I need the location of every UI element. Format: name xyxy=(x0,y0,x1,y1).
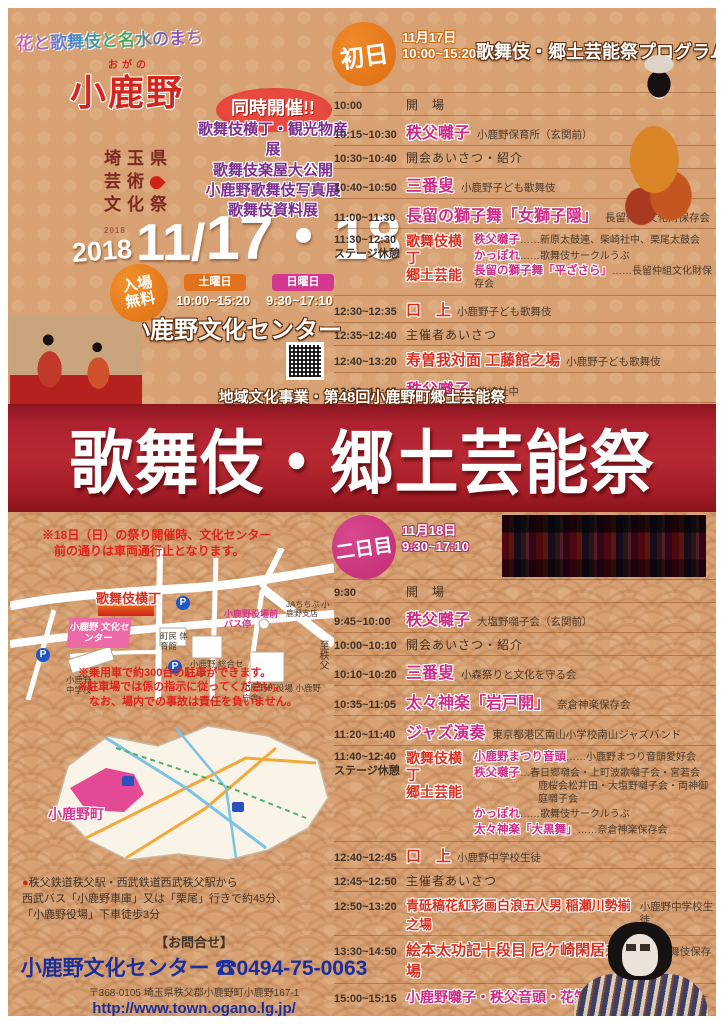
row-text: 開会あいさつ・紹介 xyxy=(406,636,523,653)
row-time: 9:30 xyxy=(334,587,406,599)
item-detail: ……新原太鼓連、柴崎社中、栗尾太鼓会 xyxy=(520,235,700,246)
row-title: 秩父囃子 xyxy=(406,119,470,143)
map-label-bus-stop: 小鹿野役場前 バス停 xyxy=(224,610,288,630)
row-time: 12:40~13:20 xyxy=(334,356,406,368)
qr-code xyxy=(286,342,324,380)
map-label-to-chichibu: 至秩父 xyxy=(315,640,330,670)
sunday-time: 9:30~17:10 xyxy=(266,293,333,308)
schedule-row: 10:10~10:20三番叟小森祭りと文化を守る会 xyxy=(334,655,716,685)
stage-photo xyxy=(502,515,706,577)
day2-time-text: 9:30~17:10 xyxy=(402,539,469,554)
row-org: 小鹿野子ども歌舞伎 xyxy=(461,182,556,195)
saitama-line1: 埼玉県 xyxy=(104,149,173,168)
day1-badge: 初日 xyxy=(328,18,400,90)
stage-break-row: 11:30~12:30ステージ休憩 歌舞伎横丁郷土芸能 秩父囃子……新原太鼓連、… xyxy=(334,228,716,295)
row-note: ステージ休憩 xyxy=(334,247,406,261)
row-time: 11:40~12:40 xyxy=(334,750,406,764)
row-text: 開 場 xyxy=(406,583,445,600)
row-title: 太々神楽「岩戸開」 xyxy=(406,689,550,713)
kabuki-street-bar xyxy=(98,606,154,616)
access-note: ●秩父鉄道秩父駅・西武鉄道西武秩父駅から 西武バス「小鹿野車庫」又は「栗尾」行き… xyxy=(22,876,287,924)
row-org: 奈倉神楽保存会 xyxy=(557,699,631,712)
parking-note-line2: ※駐車場では係の指示に従ってください。 xyxy=(78,681,284,693)
row-title: 三番叟 xyxy=(406,659,454,683)
row-time: 9:45~10:00 xyxy=(334,616,406,628)
parking-icon: P xyxy=(36,648,50,662)
schedule-row: 12:35~12:40主催者あいさつ xyxy=(334,322,716,345)
day2-date-text: 11月18日 xyxy=(402,523,456,538)
item-name: 秩父囃子 xyxy=(474,234,520,246)
row-text: 主催者あいさつ xyxy=(406,872,497,889)
contact-name-phone: 小鹿野文化センター ☎0494-75-0063 xyxy=(16,952,372,982)
row-org: 小鹿野中学校生徒 xyxy=(457,852,541,865)
row-time: 10:00~10:10 xyxy=(334,640,406,652)
row-time: 12:35~12:40 xyxy=(334,330,406,342)
contact-phone: 0494-75-0063 xyxy=(237,957,368,980)
contact-address: 〒368-0105 埼玉県秩父郡小鹿野町小鹿野167-1 xyxy=(16,984,372,999)
item-name: かっぽれ xyxy=(474,250,520,262)
row-title: ジャズ演奏 xyxy=(406,719,485,743)
row-title: 寿曽我対面 工藤館之場 xyxy=(406,349,560,370)
row-org: 小鹿野子ども歌舞伎 xyxy=(566,356,661,369)
phone-icon: ☎ xyxy=(216,957,237,980)
teardrop-icon xyxy=(147,173,165,191)
schedule-row: 9:30開 場 xyxy=(334,579,716,602)
local-arts-label: 郷土芸能 xyxy=(406,267,474,284)
break-item: 秩父囃子……新原太鼓連、柴崎社中、栗尾太鼓会 xyxy=(474,233,716,248)
bullet-icon: ● xyxy=(22,877,29,889)
row-time: 10:35~11:05 xyxy=(334,699,406,711)
day1-date: 11月17日 10:00~15:20 xyxy=(402,30,476,63)
actor-photo-bottom xyxy=(564,922,716,1016)
concurrent-event: 歌舞伎資料展 xyxy=(194,201,352,221)
actor-face xyxy=(622,934,658,976)
row-time: 10:15~10:30 xyxy=(334,129,406,141)
traffic-note-line1: ※18日（日）の祭り開催時、文化センター xyxy=(42,528,271,542)
schedule-row: 11:20~11:40ジャズ演奏東京都港区南山小学校南山ジャズバンド xyxy=(334,715,716,745)
access-line3: 「小鹿野役場」下車徒歩3分 xyxy=(22,909,160,921)
row-org: 小鹿野子ども歌舞伎 xyxy=(457,306,552,319)
schedule-row: 12:40~13:20寿曽我対面 工藤館之場小鹿野子ども歌舞伎 xyxy=(334,345,716,372)
kabuki-actor-photo xyxy=(600,48,716,228)
item-detail: …春日郷囃会・上町波歌囃子会・宮若会 xyxy=(520,768,700,779)
row-time: 11:30~12:30 xyxy=(334,233,406,247)
saitama-line2: 芸術 xyxy=(104,172,150,191)
access-line1: 秩父鉄道秩父駅・西武鉄道西武秩父駅から xyxy=(29,877,238,889)
venue-name: 小鹿野文化センター xyxy=(126,310,342,345)
parking-note-line3: なお、場内での事故は責任を負いません。 xyxy=(78,696,298,708)
schedule-row: 10:35~11:05太々神楽「岩戸開」奈倉神楽保存会 xyxy=(334,685,716,715)
concurrent-heading: 同時開催!! xyxy=(194,94,352,120)
row-time: 11:00~11:30 xyxy=(334,212,406,224)
day1-time-text: 10:00~15:20 xyxy=(402,46,476,61)
row-title: 口 上 xyxy=(406,845,451,866)
row-text: 開 場 xyxy=(406,96,445,113)
row-time: 10:00 xyxy=(334,100,406,112)
item-name: 長留の獅子舞「平ざさら」 xyxy=(474,265,612,277)
item-detail: 鹿桜会松井田・大塩野囃子会・両神御庭囃子会 xyxy=(538,781,708,805)
prefecture-map-shape xyxy=(26,708,338,870)
traffic-note: ※18日（日）の祭り開催時、文化センター 前の通りは車両通行止となります。 xyxy=(42,528,271,559)
saturday-time: 10:00~15:20 xyxy=(176,293,250,308)
row-org: 小森祭りと文化を守る会 xyxy=(461,669,577,682)
main-title-banner: 歌舞伎・郷土芸能祭 xyxy=(8,404,716,512)
item-name: 小鹿野まつり音頭 xyxy=(474,751,566,763)
break-item: 鹿桜会松井田・大塩野囃子会・両神御庭囃子会 xyxy=(474,781,716,806)
poster: 花と歌舞伎と名水のまち おがの 小鹿野 同時開催!! 歌舞伎横丁・観光物産展 歌… xyxy=(8,8,716,1016)
date-year: 2018 xyxy=(71,233,133,268)
row-title: 口 上 xyxy=(406,299,451,320)
map-label-kabuki-street: 歌舞伎横丁 xyxy=(96,588,161,607)
actor-makeup xyxy=(626,944,654,951)
row-title: 秩父囃子 xyxy=(406,606,470,630)
row-time: 10:40~10:50 xyxy=(334,182,406,194)
town-slogan: 花と歌舞伎と名水のまち xyxy=(16,22,227,54)
day1-date-text: 11月17日 xyxy=(402,30,456,45)
schedule-row: 9:45~10:00秩父囃子大塩野囃子会（玄関前） xyxy=(334,602,716,632)
parking-icon: P xyxy=(176,596,190,610)
item-name: 太々神楽「大黒舞」 xyxy=(474,824,578,836)
kabuki-street-label: 歌舞伎横丁 xyxy=(406,750,474,784)
row-time: 12:30~12:35 xyxy=(334,306,406,318)
schedule-row: 12:30~12:35口 上小鹿野子ども歌舞伎 xyxy=(334,295,716,322)
item-detail: ……小鹿野まつり音頭愛好会 xyxy=(566,752,696,763)
map-label-culture-center: 小鹿野 文化センター xyxy=(66,618,131,648)
row-time: 12:50~13:20 xyxy=(334,901,406,913)
item-detail: ……奈倉神楽保存会 xyxy=(578,825,668,836)
day2-date: 11月18日 9:30~17:10 xyxy=(402,523,469,556)
row-time: 11:20~11:40 xyxy=(334,729,406,741)
item-detail: ……歌舞伎サークルうぶ xyxy=(520,809,630,820)
access-line2: 西武バス「小鹿野車庫」又は「栗尾」行きで約45分、 xyxy=(22,893,287,905)
town-name: 小鹿野 xyxy=(70,64,184,116)
row-time: 10:10~10:20 xyxy=(334,669,406,681)
concurrent-event: 歌舞伎楽屋大公開 xyxy=(194,161,352,181)
day2-badge: 二日目 xyxy=(328,511,400,583)
break-item: 秩父囃子…春日郷囃会・上町波歌囃子会・宮若会 xyxy=(474,766,716,781)
item-name: 秩父囃子 xyxy=(474,767,520,779)
schedule-row: 10:00~10:10開会あいさつ・紹介 xyxy=(334,632,716,655)
parking-note-line1: ※乗用車で約300台の駐車ができます。 xyxy=(78,667,271,679)
prefecture-map: 小鹿野町 xyxy=(26,708,338,870)
map-label-ja: JAちちぶ 小鹿野支店 xyxy=(286,600,330,618)
local-arts-label: 郷土芸能 xyxy=(406,784,474,801)
contact-name: 小鹿野文化センター xyxy=(21,957,210,980)
break-item: 長留の獅子舞「平ざさら」……長留仲組文化財保存会 xyxy=(474,264,716,291)
break-item: かっぽれ……歌舞伎サークルうぶ xyxy=(474,807,716,822)
map-label-ogano-town: 小鹿野町 xyxy=(48,804,104,824)
item-detail: ……歌舞伎サークルうぶ xyxy=(520,251,630,262)
contact-block: 【お問合せ】 小鹿野文化センター ☎0494-75-0063 〒368-0105… xyxy=(16,932,372,1016)
break-item: 太々神楽「大黒舞」……奈倉神楽保存会 xyxy=(474,823,716,838)
contact-url[interactable]: http://www.town.ogano.lg.jp/ xyxy=(16,1000,372,1016)
row-time: 12:40~12:45 xyxy=(334,852,406,864)
subtitle: 地域文化事業・第48回小鹿野町郷土芸能祭 xyxy=(8,386,716,407)
concurrent-events: 同時開催!! 歌舞伎横丁・観光物産展 歌舞伎楽屋大公開 小鹿野歌舞伎写真展 歌舞… xyxy=(194,94,352,221)
concurrent-event: 歌舞伎横丁・観光物産展 xyxy=(194,120,352,161)
kabuki-street-label: 歌舞伎横丁 xyxy=(406,233,474,267)
sunday-badge: 日曜日 xyxy=(272,274,334,291)
row-title: 三番叟 xyxy=(406,172,454,196)
row-text: 開会あいさつ・紹介 xyxy=(406,149,523,166)
day2-header: 二日目 11月18日 9:30~17:10 xyxy=(334,513,716,579)
actor-kimono xyxy=(574,974,708,1016)
saturday-badge: 土曜日 xyxy=(184,274,246,291)
row-note: ステージ休憩 xyxy=(334,764,406,778)
row-time: 10:30~10:40 xyxy=(334,153,406,165)
stage-break-row: 11:40~12:40ステージ休憩 歌舞伎横丁郷土芸能 小鹿野まつり音頭……小鹿… xyxy=(334,745,716,841)
row-org: 東京都港区南山小学校南山ジャズバンド xyxy=(492,729,681,742)
row-org: 小鹿野保育所（玄関前） xyxy=(477,129,593,142)
break-item: かっぽれ……歌舞伎サークルうぶ xyxy=(474,249,716,264)
date-month: 11/ xyxy=(136,220,205,267)
poster-page: 花と歌舞伎と名水のまち おがの 小鹿野 同時開催!! 歌舞伎横丁・観光物産展 歌… xyxy=(0,0,724,1024)
row-org: 大塩野囃子会（玄関前） xyxy=(477,616,593,629)
free-line2: 無料 xyxy=(124,290,156,311)
main-title: 歌舞伎・郷土芸能祭 xyxy=(70,408,655,507)
concurrent-event: 小鹿野歌舞伎写真展 xyxy=(194,181,352,201)
traffic-note-line2: 前の通りは車両通行止となります。 xyxy=(42,544,244,558)
break-item: 小鹿野まつり音頭……小鹿野まつり音頭愛好会 xyxy=(474,750,716,765)
row-text: 主催者あいさつ xyxy=(406,326,497,343)
row-title: 長留の獅子舞「女獅子隠」 xyxy=(406,202,598,226)
schedule-row: 12:45~12:50主催者あいさつ xyxy=(334,868,716,891)
schedule-row: 12:40~12:45口 上小鹿野中学校生徒 xyxy=(334,841,716,868)
item-name: かっぽれ xyxy=(474,808,520,820)
map-label-gym: 町民 体育館 xyxy=(160,632,188,652)
contact-heading: 【お問合せ】 xyxy=(16,932,372,951)
row-time: 12:45~12:50 xyxy=(334,876,406,888)
parking-notes: ※乗用車で約300台の駐車ができます。 ※駐車場では係の指示に従ってください。 … xyxy=(78,666,298,709)
